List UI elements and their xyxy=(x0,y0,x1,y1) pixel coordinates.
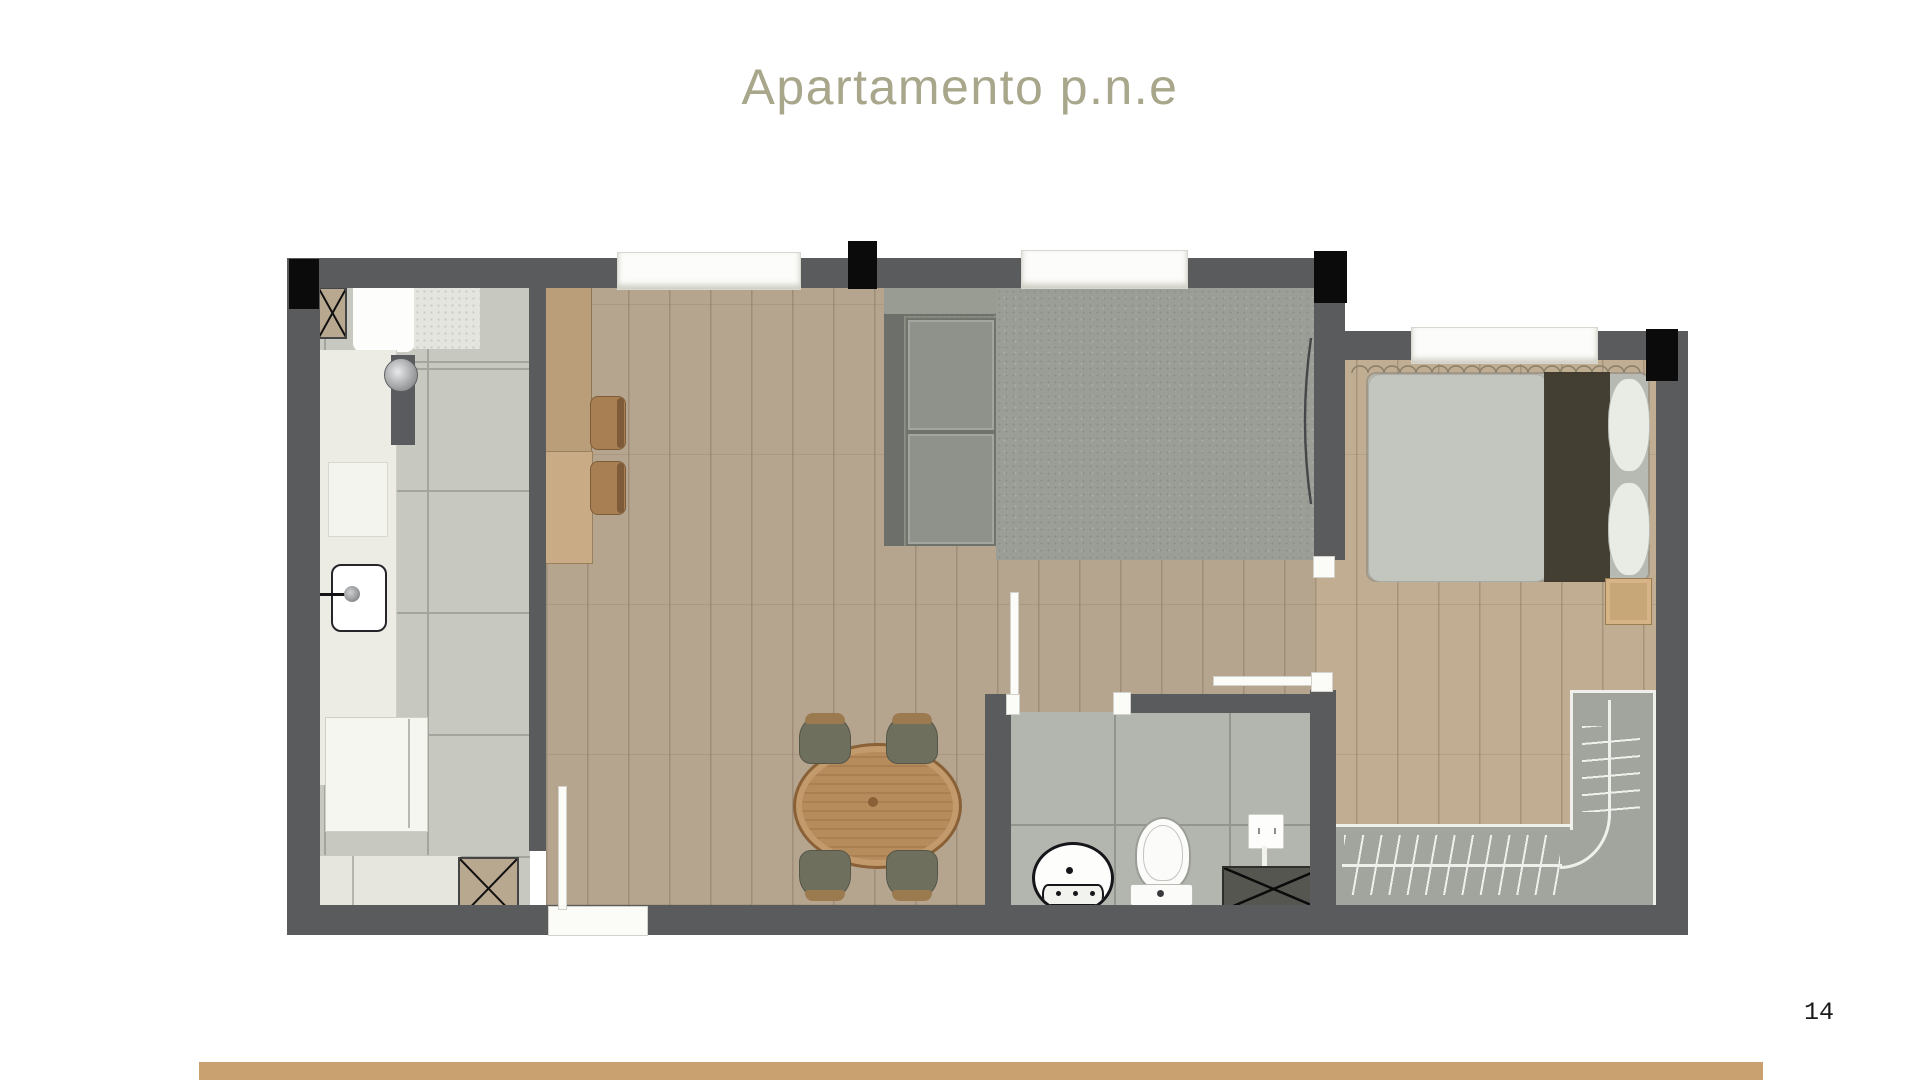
nightstand xyxy=(1605,578,1652,625)
sliding-door xyxy=(1213,676,1319,686)
bed-duvet xyxy=(1368,374,1548,582)
bed-runner xyxy=(1544,372,1610,582)
kitchen-sink xyxy=(331,564,387,632)
service-shaft-icon xyxy=(318,287,347,339)
toilet-flush-button xyxy=(1157,890,1164,897)
bedroom-door-arc xyxy=(1297,336,1315,506)
structural-column xyxy=(1646,329,1678,381)
wall xyxy=(287,905,1688,935)
wall xyxy=(985,694,1011,906)
entry-door-leaf xyxy=(558,786,567,910)
dining-chair xyxy=(799,714,851,764)
pot-icon xyxy=(384,358,418,392)
faucet-icon xyxy=(344,586,360,602)
structural-column xyxy=(1314,251,1347,303)
sofa xyxy=(884,286,996,546)
door-jamb xyxy=(1006,694,1020,715)
sofa-armrest xyxy=(884,286,996,316)
kitchen-drainer xyxy=(414,281,480,349)
floor-plan xyxy=(0,0,1920,1080)
dining-table-center xyxy=(868,797,878,807)
bar-stool xyxy=(590,461,626,515)
door-jamb xyxy=(1113,692,1131,715)
entry-door-opening xyxy=(548,906,648,936)
washbasin-drain xyxy=(1066,867,1073,874)
footer-bar xyxy=(199,1062,1763,1080)
bathroom-door-leaf xyxy=(1010,592,1019,710)
kitchen-basin xyxy=(352,277,416,353)
wall xyxy=(1314,288,1345,560)
double-bed xyxy=(1368,374,1648,580)
structural-column xyxy=(848,241,877,289)
wall xyxy=(1128,694,1334,713)
fridge xyxy=(325,717,428,832)
toilet xyxy=(1135,817,1191,891)
window xyxy=(1021,250,1188,289)
structural-column xyxy=(289,259,319,309)
hangers-icon xyxy=(1344,835,1560,895)
hangers-icon xyxy=(1582,726,1640,812)
cutting-board xyxy=(328,462,388,537)
washbasin-panel xyxy=(1042,884,1104,906)
dining-chair xyxy=(886,850,938,900)
page-number: 14 xyxy=(1804,998,1874,1027)
pillow xyxy=(1608,482,1650,576)
sofa-cushion xyxy=(906,318,996,432)
living-room-rug xyxy=(996,288,1314,560)
pillows xyxy=(1608,378,1648,576)
dining-chair xyxy=(886,714,938,764)
presentation-slide: Apartamento p.n.e xyxy=(0,0,1920,1080)
pillow xyxy=(1608,378,1650,472)
fridge-door-seam xyxy=(408,719,410,828)
shower-valve xyxy=(1248,814,1284,849)
tall-cabinet xyxy=(546,288,592,451)
dining-chair xyxy=(799,850,851,900)
window xyxy=(1411,327,1598,364)
tile-grout-line xyxy=(1114,712,1116,905)
sofa-back xyxy=(884,314,904,546)
door-jamb xyxy=(1311,672,1333,692)
wall xyxy=(529,288,546,851)
wall xyxy=(1310,690,1336,906)
wall xyxy=(287,258,320,935)
bar-stool xyxy=(590,396,626,450)
window xyxy=(617,252,801,290)
round-washbasin xyxy=(1032,842,1114,914)
wall xyxy=(1656,331,1688,935)
sofa-cushion xyxy=(906,432,996,546)
door-jamb xyxy=(1313,556,1335,578)
